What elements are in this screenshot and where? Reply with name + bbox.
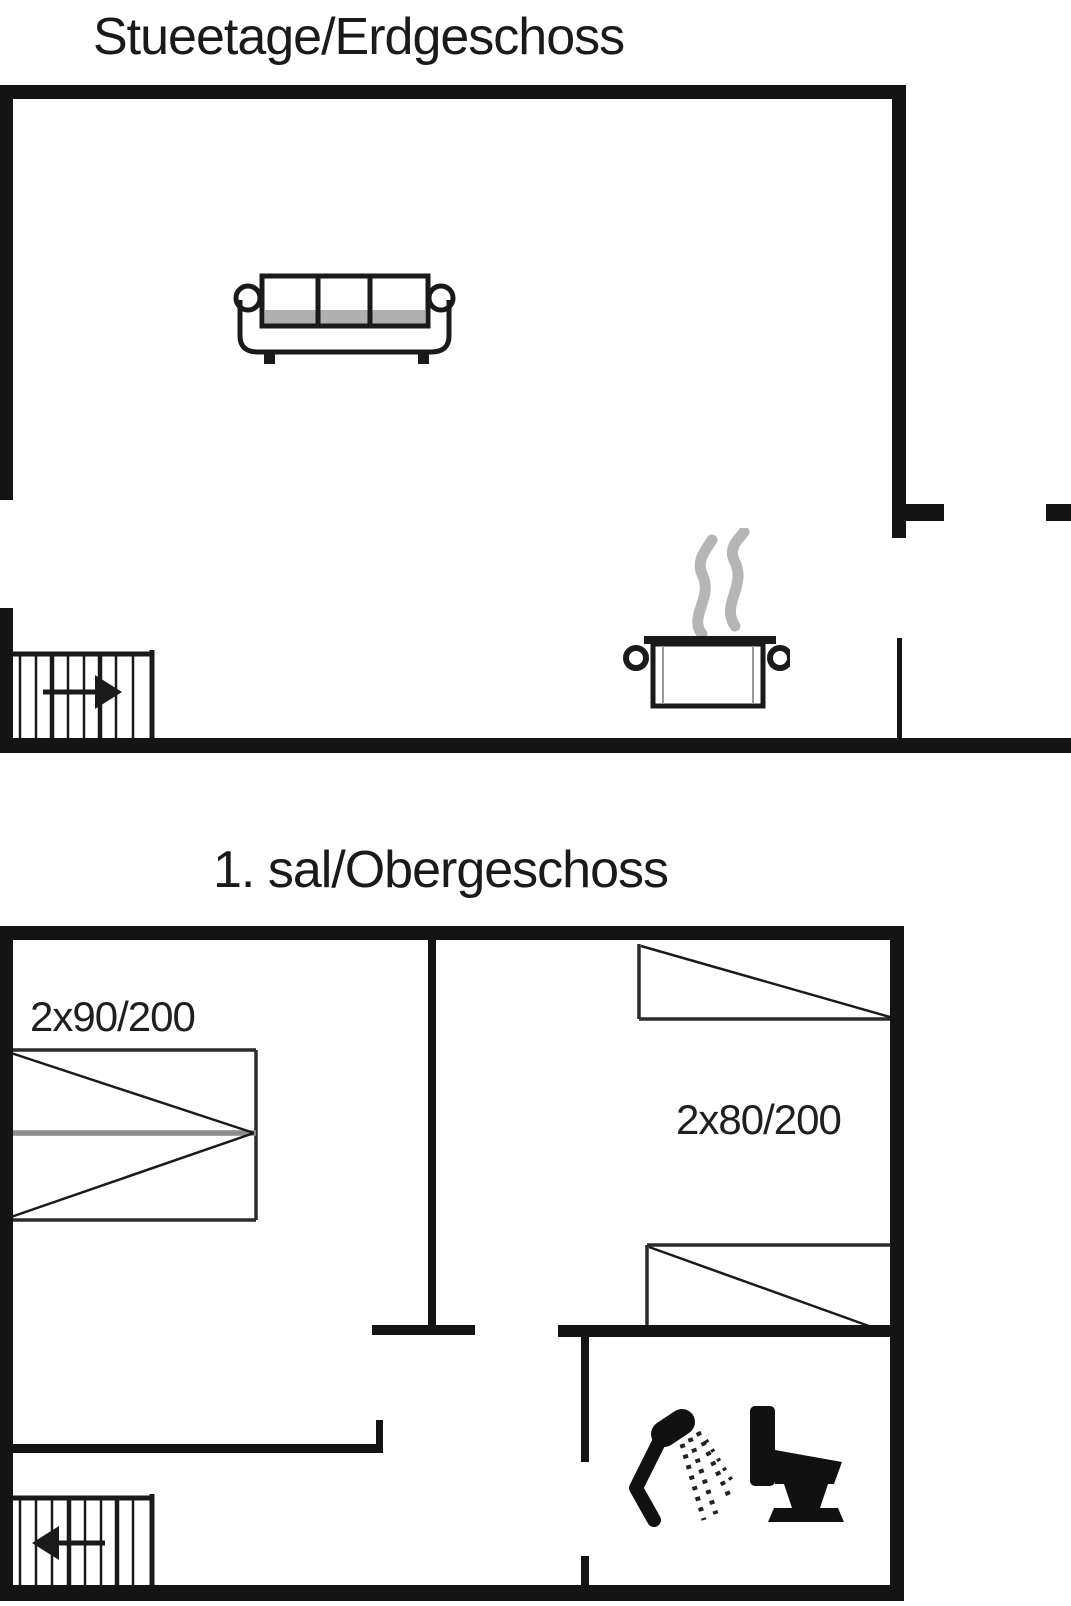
- gf-wall-right-thin: [897, 638, 902, 753]
- sofa-icon: [232, 270, 457, 368]
- uf-wall-tick-up: [376, 1420, 383, 1446]
- gf-wall-right: [892, 85, 906, 538]
- uf-hall-wall-stub: [372, 1325, 475, 1335]
- ground-floor-title: Stueetage/Erdgeschoss: [93, 8, 624, 66]
- uf-bathroom-wall-left-lower: [581, 1556, 589, 1590]
- uf-wall-top: [0, 926, 904, 940]
- bed-size-label-right: 2x80/200: [676, 1096, 841, 1144]
- bed-right-bottom-icon: [640, 1240, 892, 1336]
- toilet-icon: [742, 1406, 852, 1536]
- gf-wall-top: [0, 85, 906, 99]
- gf-wall-stub-a: [906, 504, 944, 521]
- bed-right-top-icon: [632, 940, 892, 1024]
- cooking-pot-steam-icon: [600, 528, 790, 718]
- uf-wall-interior-vertical: [428, 940, 436, 1334]
- uf-bathroom-wall-top: [558, 1325, 890, 1337]
- double-bed-left-icon: [0, 1044, 262, 1226]
- bed-size-label-left: 2x90/200: [30, 993, 195, 1041]
- uf-wall-bottom: [0, 1585, 904, 1601]
- uf-wall-interior-horizontal: [0, 1444, 383, 1453]
- gf-wall-left-upper: [0, 85, 13, 500]
- upper-floor-title: 1. sal/Obergeschoss: [213, 841, 668, 899]
- uf-bathroom-wall-left-upper: [581, 1337, 589, 1462]
- staircase-up-icon: [5, 650, 157, 742]
- uf-wall-left: [0, 926, 13, 1590]
- uf-wall-right: [890, 926, 904, 1601]
- gf-wall-bottom: [0, 738, 1071, 753]
- gf-wall-left-lower: [0, 608, 13, 753]
- gf-wall-stub-b: [1046, 504, 1071, 521]
- staircase-down-icon: [5, 1494, 157, 1590]
- floor-plan-drawing: Stueetage/Erdgeschoss: [0, 0, 1071, 1606]
- shower-icon: [616, 1402, 756, 1542]
